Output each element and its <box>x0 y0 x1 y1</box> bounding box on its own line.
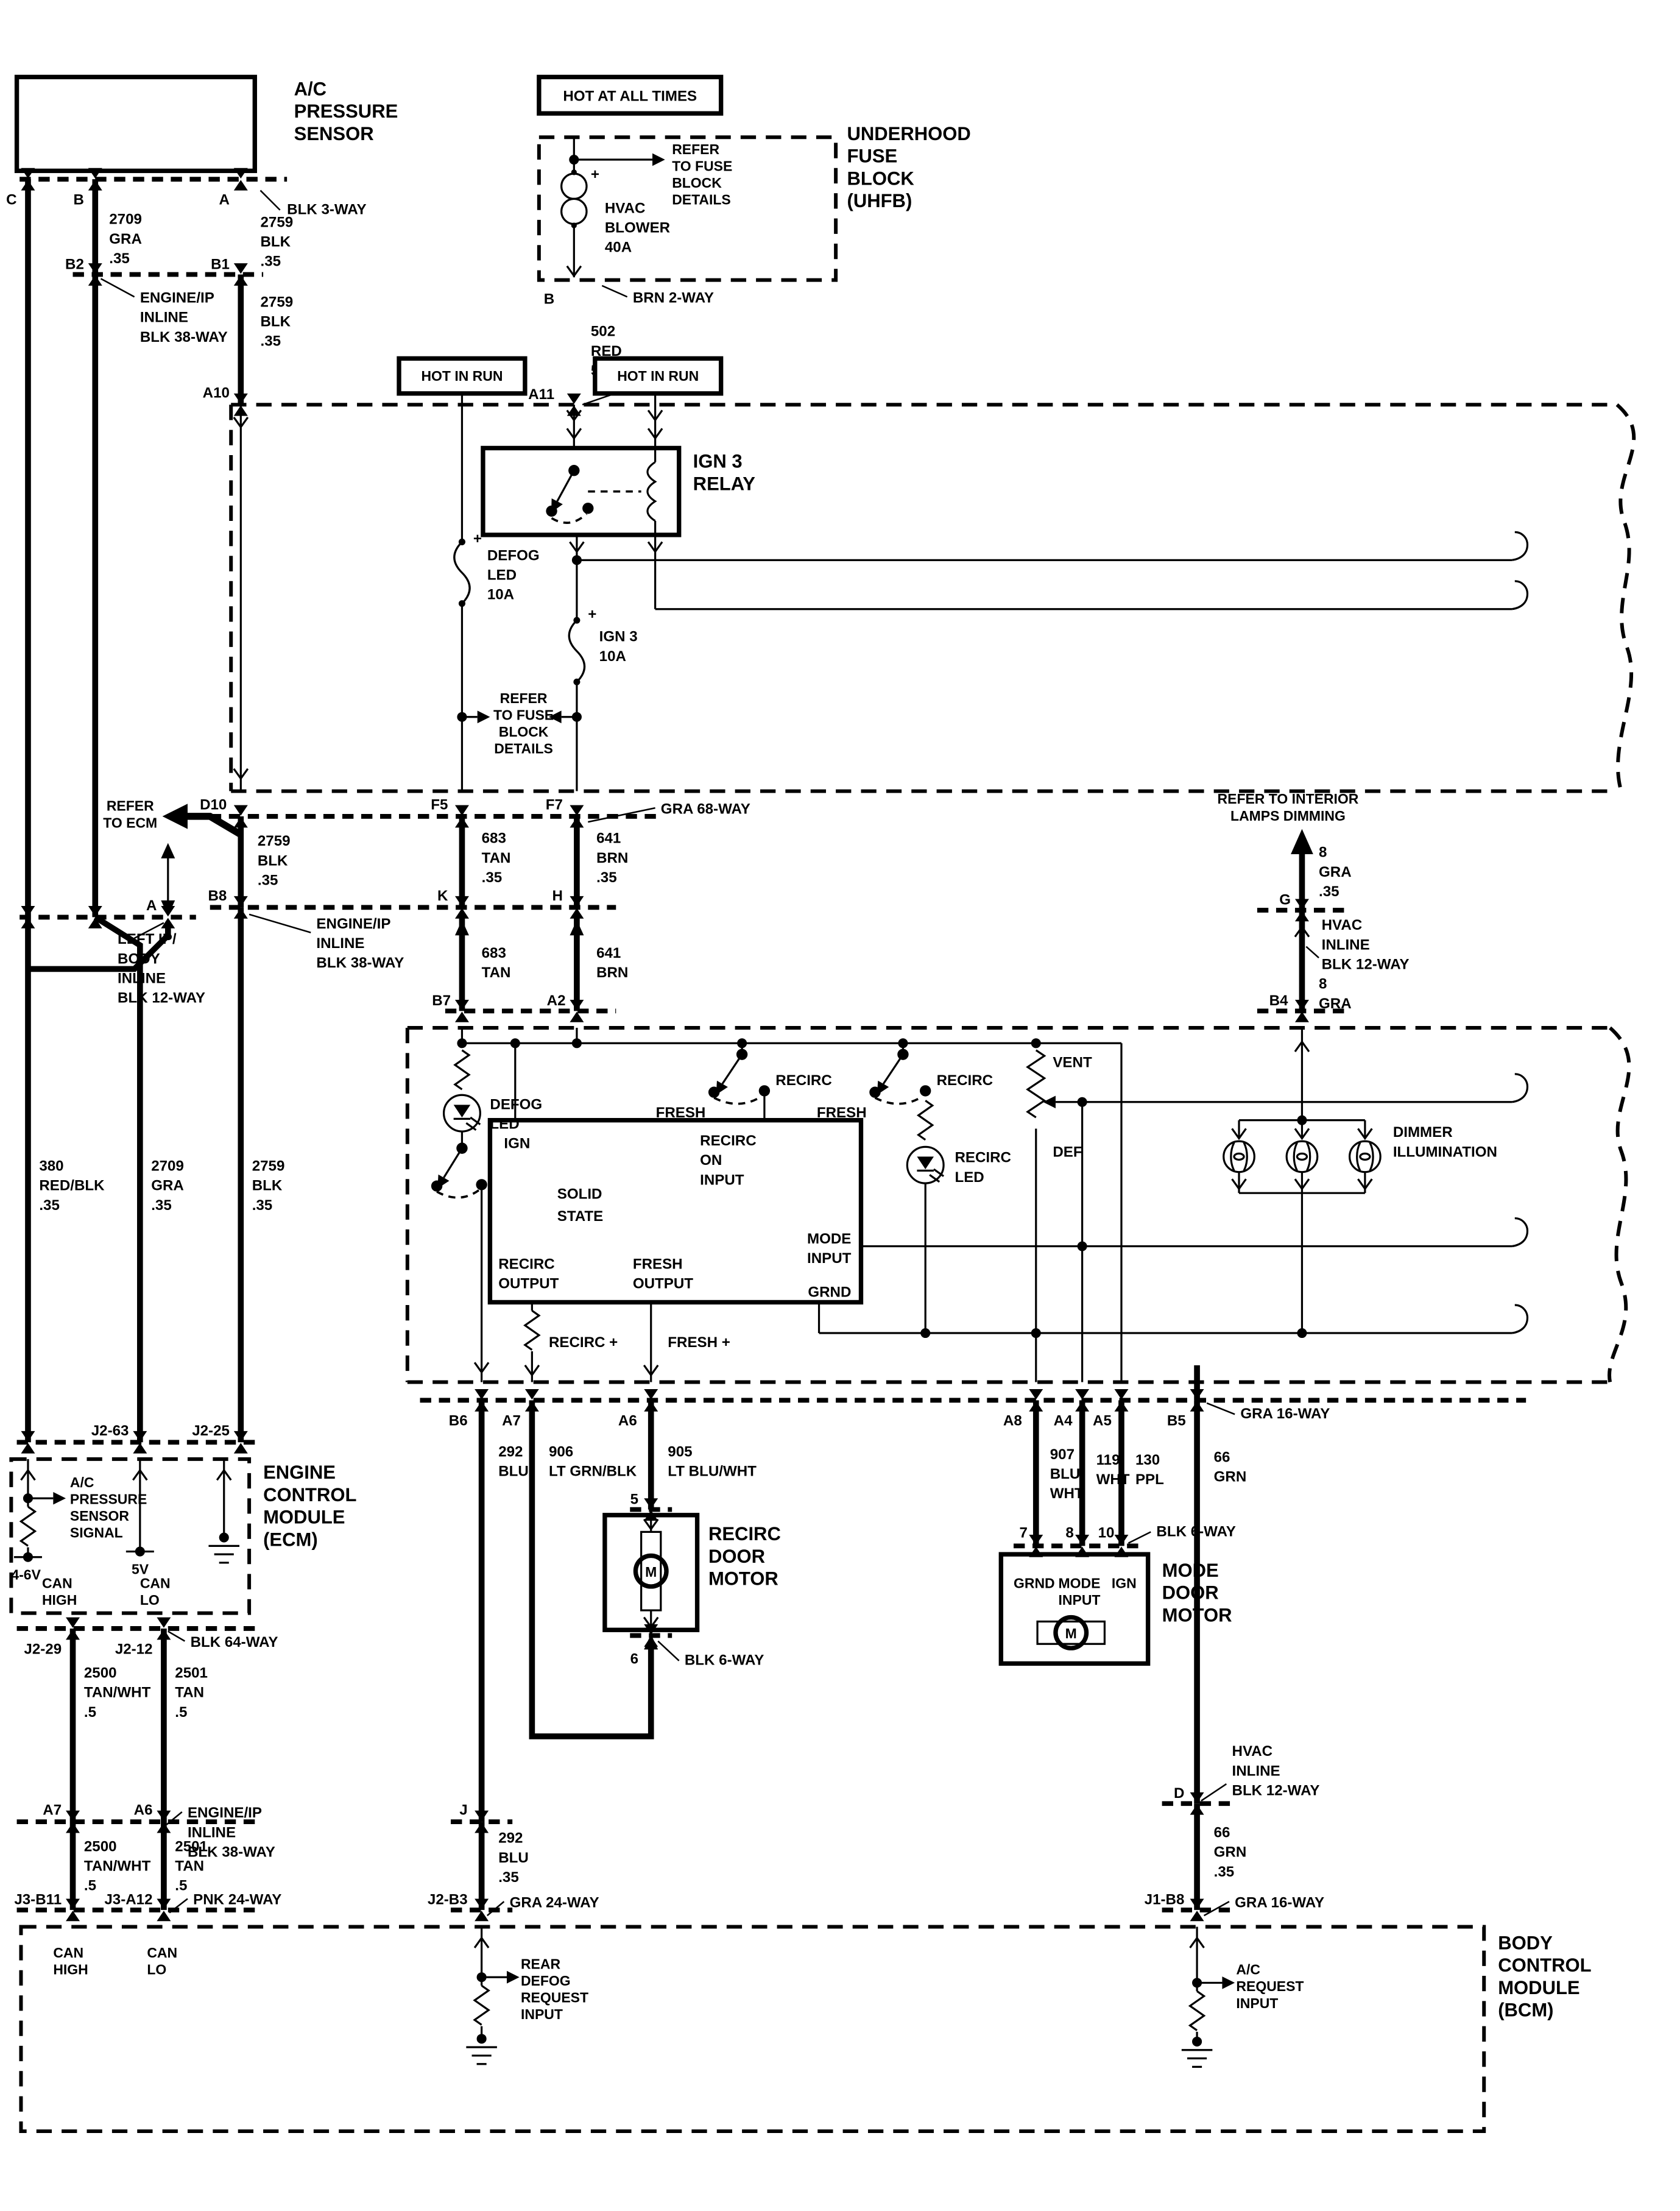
pin-a7: A7 <box>502 1413 521 1429</box>
bcm-title: (BCM) <box>1498 2000 1553 2021</box>
ss-recirc-on-input: ON <box>700 1152 722 1169</box>
wire-2709-gra: 2709 <box>109 211 142 228</box>
pin-j2-12: J2-12 <box>115 1641 153 1657</box>
wire-683-tan: 683 <box>482 830 506 847</box>
refer-interior-lamps: LAMPS DIMMING <box>1230 808 1346 824</box>
refer-fuse-details-uhfb: REFER <box>672 141 719 157</box>
ac-request-resistor <box>1190 1991 1204 2030</box>
defog-led-icon <box>444 1095 481 1131</box>
pin-c: C <box>6 192 16 208</box>
hvac-blower-label: BLOWER <box>605 220 670 236</box>
gra-16-way-2: GRA 16-WAY <box>1235 1894 1324 1911</box>
gra-68-way-2: GRA 68-WAY <box>661 801 750 817</box>
blk-3-way-label: BLK 3-WAY <box>287 202 366 218</box>
pin-j2-b3: J2-B3 <box>428 1892 468 1908</box>
middle-connectors: D10 F5 F7 GRA 68-WAY REFER TO ECM 2759 B… <box>19 796 750 1006</box>
pin-b: B <box>73 192 83 208</box>
wire-2759-blk-3: .35 <box>258 872 278 889</box>
body-control-module: BODY CONTROL MODULE (BCM) CAN HIGH CAN L… <box>21 1927 1591 2132</box>
recirc-motor-m: M <box>645 1564 657 1580</box>
pin-a10: A10 <box>203 385 230 402</box>
refer-fuse-details-uhfb: TO FUSE <box>672 158 732 174</box>
ac-request-ground <box>1182 2050 1213 2067</box>
ss-ign: IGN <box>504 1136 530 1152</box>
pin-j3-a12: J3-A12 <box>104 1892 152 1908</box>
pnk-24-way: PNK 24-WAY <box>193 1892 281 1908</box>
refer-fuse-details-2: TO FUSE <box>493 707 554 723</box>
wire-683-tan: .35 <box>482 869 503 886</box>
wire-2759-blk-3: 2759 <box>258 833 291 849</box>
brn2way-leader <box>602 286 627 297</box>
wire-906-label: 906 <box>549 1443 573 1460</box>
wire-380-label: .35 <box>39 1197 60 1214</box>
fresh-plus: FRESH + <box>668 1334 730 1351</box>
pin-10: 10 <box>1098 1525 1115 1541</box>
ac-pressure-sensor-title: PRESSURE <box>294 101 398 122</box>
wire-2500-label-2: .5 <box>84 1878 96 1894</box>
dimmer-lamp-3 <box>1350 1141 1381 1172</box>
wire-66-label: 66 <box>1214 1449 1230 1465</box>
pin-j1-b8: J1-B8 <box>1145 1892 1185 1908</box>
pin-a: A <box>219 192 229 208</box>
pin-a6-bottom: A6 <box>134 1802 153 1819</box>
mode-motor-grnd: GRND <box>1014 1575 1055 1591</box>
wire-641-brn-2: 641 <box>596 945 621 961</box>
wire-119-label: WHT <box>1096 1471 1130 1488</box>
wire-502-red: 502 <box>591 324 615 340</box>
wire-2501-label-2: .5 <box>175 1878 187 1894</box>
pin-j: J <box>459 1802 467 1819</box>
wiring-diagram-canvas: A/C PRESSURE SENSOR C B A BLK 3-WAY 2709… <box>0 0 1680 2211</box>
ss-fresh-output: FRESH <box>633 1256 683 1272</box>
wire-683-tan-2: TAN <box>482 964 511 981</box>
engine-ip-inline-top: BLK 38-WAY <box>140 329 228 345</box>
rear-defog-request: REAR <box>521 1956 560 1972</box>
defog-led-10a: 10A <box>487 587 514 603</box>
wire-2709-gra: .35 <box>109 250 130 267</box>
refer-fuse-details-2: DETAILS <box>494 741 553 757</box>
ecm-title: ENGINE <box>263 1462 336 1483</box>
ac-request-input: REQUEST <box>1236 1978 1304 1994</box>
ecm-signal-resistor <box>21 1507 35 1546</box>
ac-sensor-signal: A/C <box>70 1474 94 1490</box>
bcm-can-high: CAN <box>53 1945 83 1961</box>
mode-potentiometer <box>1028 1050 1045 1117</box>
wire-2500-label-1: .5 <box>84 1704 96 1721</box>
mode-motor-ign: IGN <box>1112 1575 1137 1591</box>
wire-2759-blk-3: BLK <box>258 852 288 869</box>
door-motor-wiring: 292 BLU 906 LT GRN/BLK 905 LT BLU/WHT 5 … <box>482 1400 1320 1910</box>
engine-control-module: J2-63 J2-25 ENGINE CONTROL MODULE (ECM) … <box>11 1423 356 1658</box>
gra-24-way: GRA 24-WAY <box>510 1894 599 1911</box>
ecm-can-high: HIGH <box>42 1592 77 1608</box>
hvac-inline-12way-1: BLK 12-WAY <box>1322 956 1410 972</box>
wire-907-label: WHT <box>1050 1485 1084 1502</box>
blk-64-way: BLK 64-WAY <box>191 1634 278 1650</box>
wire-66-label-2: 66 <box>1214 1824 1230 1841</box>
recirc-door-motor-title: DOOR <box>708 1546 765 1567</box>
hot-in-run-left: HOT IN RUN <box>421 368 503 384</box>
wire-2759-blk-2: 2759 <box>260 294 293 310</box>
fuse-block-details-region: HOT IN RUN HOT IN RUN IGN 3 RELAY + DEFO… <box>231 358 1634 791</box>
mode-motor-mode-input: MODE <box>1059 1575 1101 1591</box>
hot-at-all-times: HOT AT ALL TIMES <box>563 88 697 104</box>
pin-j2-29: J2-29 <box>24 1641 62 1657</box>
dimmer-illumination: ILLUMINATION <box>1393 1144 1497 1160</box>
ac-sensor-signal: PRESSURE <box>70 1491 147 1507</box>
wire-2759-label-4: .35 <box>252 1197 273 1214</box>
rear-defog-request: DEFOG <box>521 1973 571 1989</box>
refer-to-ecm: TO ECM <box>103 815 157 830</box>
defog-led-resistor <box>455 1050 469 1089</box>
ecm-can-high: CAN <box>42 1575 72 1591</box>
rear-defog-resistor <box>475 1986 489 2025</box>
wire-2500-label-2: 2500 <box>84 1838 117 1855</box>
wire-292-label-2: 292 <box>498 1830 523 1847</box>
hvac-control-head: DEFOG LED IGN SOLID STATE RECIRC ON INPU… <box>408 1028 1629 1400</box>
pin-b-uhfb: B <box>544 291 554 308</box>
rear-defog-request: REQUEST <box>521 1990 588 2006</box>
pin-b1: B1 <box>211 256 230 272</box>
ecm-can-lo: LO <box>140 1592 160 1608</box>
wire-2501-label-2: 2501 <box>175 1838 208 1855</box>
pin-b5: B5 <box>1167 1413 1186 1429</box>
wire-2759-blk-2: BLK <box>260 314 291 330</box>
pin-j3-b11: J3-B11 <box>14 1892 62 1908</box>
ecm-title: CONTROL <box>263 1484 356 1505</box>
pin-a8: A8 <box>1003 1413 1022 1429</box>
ac-request-input: A/C <box>1236 1962 1260 1978</box>
ign3-relay-title: IGN 3 <box>693 451 743 472</box>
uhfb-title: FUSE <box>847 146 897 167</box>
refer-fuse-details-uhfb: BLOCK <box>672 175 722 191</box>
ign3-10a: 10A <box>599 648 626 665</box>
wire-2501-label-1: 2501 <box>175 1664 208 1681</box>
control-head-bottom-connector: B6 A7 A6 A8 A4 A5 B5 GRA 16-WAY <box>420 1389 1526 1429</box>
plus-defog-fuse: + <box>473 531 482 547</box>
mode-motor-mode-input: INPUT <box>1059 1592 1101 1608</box>
wire-641-brn-2: BRN <box>596 964 628 981</box>
dimmer-lamp-2 <box>1286 1141 1318 1172</box>
wire-130-label: PPL <box>1135 1471 1164 1488</box>
pot-def: DEF <box>1053 1144 1082 1160</box>
engine-ip-inline-mid: BLK 38-WAY <box>316 955 404 971</box>
pin-5: 5 <box>630 1491 638 1507</box>
refer-fuse-details-uhfb: DETAILS <box>672 192 731 208</box>
pot-vent: VENT <box>1053 1054 1092 1070</box>
wire-2501-label-1: TAN <box>175 1685 204 1701</box>
recirc-led-resistor <box>919 1100 933 1139</box>
hvac-inline-12way-2: INLINE <box>1232 1763 1280 1779</box>
wire-2500-label-1: 2500 <box>84 1664 117 1681</box>
recirc-led-icon <box>907 1147 944 1183</box>
wire-66-label-2: .35 <box>1214 1864 1235 1880</box>
wire-683-tan: TAN <box>482 850 511 866</box>
recirc-door-motor-title: MOTOR <box>708 1568 778 1590</box>
left-ip-body-inline: BLK 12-WAY <box>118 990 205 1006</box>
pin-8: 8 <box>1065 1525 1073 1541</box>
wire-2709-label-2: GRA <box>151 1178 184 1194</box>
wire-2759-blk: .35 <box>260 253 281 270</box>
uhfb-title: UNDERHOOD <box>847 123 970 144</box>
underhood-fuse-block: HOT AT ALL TIMES REFER TO FUSE BLOCK DET… <box>528 77 971 405</box>
ac-pressure-sensor-box <box>17 77 255 171</box>
ac-pressure-sensor: A/C PRESSURE SENSOR C B A BLK 3-WAY 2709… <box>6 77 398 401</box>
pin-h: H <box>552 888 562 904</box>
wire-2500-label-1: TAN/WHT <box>84 1685 151 1701</box>
wire-2759-blk: BLK <box>260 234 291 250</box>
pin-a6: A6 <box>618 1413 637 1429</box>
bcm-can-lo: CAN <box>147 1945 177 1961</box>
dimmer-lamp-1 <box>1224 1141 1255 1172</box>
blk-6-way-1: BLK 6-WAY <box>685 1652 764 1669</box>
wire-380-label: RED/BLK <box>39 1178 105 1194</box>
wire-2759-blk-2: .35 <box>260 333 281 350</box>
ss-fresh-output: OUTPUT <box>633 1275 693 1292</box>
pin-k: K <box>437 888 448 904</box>
wire-2759-blk: 2759 <box>260 214 293 230</box>
control-head-feeds: 683 TAN 641 BRN B7 A2 <box>432 917 1347 1022</box>
pin-b8: B8 <box>208 888 227 904</box>
wire-641-brn: BRN <box>596 850 628 866</box>
bcm-box <box>21 1927 1484 2132</box>
ss-mode-input: MODE <box>807 1231 851 1247</box>
ss-solid-state: STATE <box>557 1208 604 1225</box>
ss-recirc-output: OUTPUT <box>498 1275 559 1292</box>
interior-lamps-feed: REFER TO INTERIOR LAMPS DIMMING 8 GRA .3… <box>1218 791 1410 1012</box>
ac-sensor-signal: SIGNAL <box>70 1525 123 1541</box>
rear-defog-request: INPUT <box>521 2006 563 2022</box>
wire-292-label: BLU <box>498 1463 529 1479</box>
ss-mode-input: INPUT <box>807 1250 852 1267</box>
wire-2501-label-1: .5 <box>175 1704 187 1721</box>
control-box-right-wavy <box>1609 1028 1629 1382</box>
wire-2709-label-2: 2709 <box>151 1158 184 1174</box>
wire-66-label-2: GRN <box>1214 1844 1247 1861</box>
wire-2709-gra: GRA <box>109 231 142 247</box>
blk3way-leader <box>260 191 280 210</box>
plus-ign3-fuse: + <box>588 606 596 623</box>
defog-led-10a: LED <box>487 567 517 584</box>
recirc-led-label: LED <box>955 1169 984 1186</box>
hot-in-run-right: HOT IN RUN <box>617 368 699 384</box>
can-bus-wiring: 2500 TAN/WHT .5 2501 TAN .5 A7 A6 J ENGI… <box>14 1629 1324 1921</box>
bcm-title: MODULE <box>1498 1977 1579 1998</box>
pin-j2-63: J2-63 <box>91 1423 129 1439</box>
wire-907-label: 907 <box>1050 1446 1075 1463</box>
ss-solid-state: SOLID <box>557 1186 602 1202</box>
blk6-leader-2 <box>1128 1532 1151 1543</box>
recirc-plus: RECIRC + <box>549 1334 618 1351</box>
hvac12-leader-2 <box>1201 1784 1226 1801</box>
ac-pressure-sensor-title: A/C <box>294 78 326 99</box>
engine-ip-inline-mid: ENGINE/IP <box>316 916 390 932</box>
pin-f7: F7 <box>546 796 563 813</box>
eng38-leader <box>101 278 134 297</box>
wire-292-label: 292 <box>498 1443 523 1460</box>
bcm-can-lo: LO <box>147 1962 166 1978</box>
refer-interior-lamps: REFER TO INTERIOR <box>1218 791 1359 807</box>
plus-uhfb: + <box>591 166 599 183</box>
wire-2709-label-2: .35 <box>151 1197 172 1214</box>
rear-defog-ground <box>466 2047 497 2064</box>
hvac-inline-12way-1: INLINE <box>1322 936 1370 953</box>
wire-119-label: 119 <box>1096 1452 1120 1468</box>
wire-8gra35: .35 <box>1319 883 1339 900</box>
ss-recirc-output: RECIRC <box>498 1256 554 1272</box>
wire-380-label: 380 <box>39 1158 63 1174</box>
pin-a11: A11 <box>528 386 554 403</box>
wire-130-label: 130 <box>1135 1452 1160 1468</box>
relay-coil <box>648 462 655 521</box>
hvac-inline-12way-1: HVAC <box>1322 917 1363 933</box>
hvac-inline-12way-2: HVAC <box>1232 1743 1273 1760</box>
wire-2759-label-4: BLK <box>252 1178 283 1194</box>
ecm-can-lo: CAN <box>140 1575 171 1591</box>
mode-motor-m: M <box>1065 1626 1077 1641</box>
eng38-mid-leader <box>249 914 311 933</box>
pin-g: G <box>1279 892 1291 908</box>
wire-907-label: BLU/ <box>1050 1466 1085 1482</box>
wire-905-label: 905 <box>668 1443 692 1460</box>
wire-66-label: GRN <box>1214 1469 1247 1485</box>
wire-292-label-2: BLU <box>498 1850 529 1866</box>
ss-recirc-on-input: INPUT <box>700 1172 744 1188</box>
ecm-ground-icon <box>208 1546 239 1563</box>
wire-641-brn: 641 <box>596 830 621 847</box>
wiring-diagram-page: A/C PRESSURE SENSOR C B A BLK 3-WAY 2709… <box>0 0 1680 2211</box>
refer-fuse-details-2: BLOCK <box>499 724 549 740</box>
pin-b4: B4 <box>1269 992 1288 1009</box>
ss-grnd: GRND <box>808 1284 851 1300</box>
sw1-fresh: FRESH <box>656 1105 706 1121</box>
ecm-title: MODULE <box>263 1507 345 1528</box>
pin-d: D <box>1174 1785 1184 1802</box>
hvac12-leader <box>1306 947 1319 958</box>
mode-door-motor-title: MODE <box>1162 1560 1219 1581</box>
ign3-relay-box <box>483 448 679 534</box>
sw2-fresh: FRESH <box>817 1105 867 1121</box>
pin-6: 6 <box>630 1650 638 1667</box>
engine-ip-inline-bottom: ENGINE/IP <box>188 1805 262 1821</box>
hvac-blower-label: HVAC <box>605 200 646 216</box>
recirc-door-motor-title: RECIRC <box>708 1523 781 1544</box>
pin-a-12way: A <box>146 897 157 914</box>
hvac-inline-12way-2: BLK 12-WAY <box>1232 1782 1320 1799</box>
hvac-blower-fuse <box>562 169 587 228</box>
wire-292-label-2: .35 <box>498 1869 519 1886</box>
ac-request-input: INPUT <box>1236 1995 1278 2011</box>
pin-a5: A5 <box>1093 1413 1112 1429</box>
wire-683-tan-2: 683 <box>482 945 506 961</box>
engine-ip-inline-top: INLINE <box>140 310 188 326</box>
pin-b6: B6 <box>449 1413 468 1429</box>
pin-f5: F5 <box>431 796 448 813</box>
pin-b2: B2 <box>65 256 84 272</box>
ign3-10a: IGN 3 <box>599 629 638 645</box>
pin-a2: A2 <box>547 992 566 1009</box>
uhfb-title: BLOCK <box>847 168 914 189</box>
ign3-relay-title: RELAY <box>693 473 756 494</box>
pin-d10: D10 <box>200 796 227 813</box>
wire-641-brn: .35 <box>596 869 617 886</box>
wire-8gra: 8 <box>1319 976 1327 992</box>
bcm-can-high: HIGH <box>53 1962 88 1978</box>
refer-fuse-details-2: REFER <box>500 690 548 706</box>
sw2-recirc: RECIRC <box>937 1072 993 1089</box>
wire-2759-label-4: 2759 <box>252 1158 285 1174</box>
blk6-leader-1 <box>658 1641 679 1661</box>
ss-recirc-on-input: RECIRC <box>700 1133 756 1149</box>
wire-2500-label-2: TAN/WHT <box>84 1858 151 1875</box>
recirc-output-resistor <box>525 1311 539 1350</box>
left-vertical-wires: 380 RED/BLK .35 2709 GRA .35 2759 BLK .3… <box>28 179 284 1442</box>
mode-door-motor-title: DOOR <box>1162 1582 1219 1604</box>
wire-905-label: LT BLU/WHT <box>668 1463 757 1479</box>
brn-2-way: BRN 2-WAY <box>633 289 714 306</box>
engine-ip-inline-top: ENGINE/IP <box>140 289 214 306</box>
bcm-title: CONTROL <box>1498 1955 1591 1976</box>
pin-a7-bottom: A7 <box>43 1802 62 1819</box>
bcm-title: BODY <box>1498 1932 1553 1953</box>
wire-906-label: LT GRN/BLK <box>549 1463 637 1479</box>
pin-j2-25: J2-25 <box>192 1423 230 1439</box>
ac-sensor-signal: SENSOR <box>70 1508 129 1524</box>
gra16-leader-1 <box>1207 1403 1235 1414</box>
pin-b7: B7 <box>432 992 451 1009</box>
pin-7: 7 <box>1020 1525 1028 1541</box>
engine-ip-inline-mid: INLINE <box>316 935 364 952</box>
defog-led-10a: DEFOG <box>487 547 540 564</box>
wire-2501-label-2: TAN <box>175 1858 204 1875</box>
ign3-fuse <box>569 617 584 685</box>
refer-to-ecm: REFER <box>107 798 154 814</box>
hvac-blower-label: 40A <box>605 239 632 256</box>
label-4-6v: 4-6V <box>11 1567 41 1583</box>
wire-8gra35: 8 <box>1319 844 1327 861</box>
ecm-title: (ECM) <box>263 1529 318 1550</box>
gra-16-way-1: GRA 16-WAY <box>1240 1406 1330 1422</box>
ac-pressure-sensor-title: SENSOR <box>294 123 374 144</box>
uhfb-title: (UHFB) <box>847 190 912 211</box>
dimmer-illumination: DIMMER <box>1393 1124 1453 1141</box>
fusebox-right-wavy <box>1617 405 1634 791</box>
sw1-recirc: RECIRC <box>775 1072 831 1089</box>
recirc-led-label: RECIRC <box>955 1150 1011 1166</box>
pin-a4: A4 <box>1054 1413 1073 1429</box>
wire-8gra35: GRA <box>1319 864 1352 880</box>
defog-led-fuse <box>454 539 470 607</box>
